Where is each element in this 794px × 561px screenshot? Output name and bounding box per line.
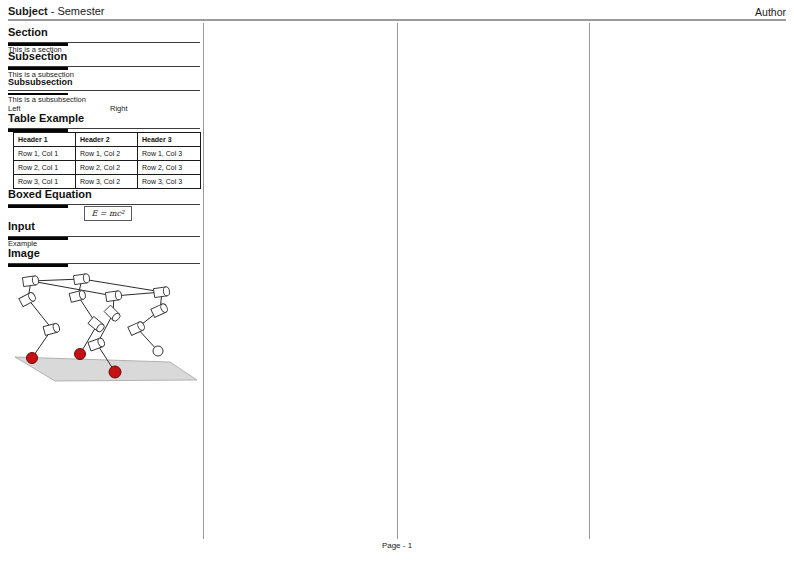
table-cell: Row 3, Col 1 [14,175,76,189]
table-cell: Row 3, Col 2 [76,175,138,189]
joint-cylinder [88,337,106,351]
ground-plane [15,357,197,381]
joint-cylinder [104,305,121,322]
table-header-cell: Header 1 [14,133,76,147]
table-row: Row 1, Col 1 Row 1, Col 2 Row 1, Col 3 [14,147,201,161]
image-heading: Image [8,247,200,264]
joint-cylinder [153,287,170,298]
joint-cylinder [88,316,106,333]
example-table: Header 1 Header 2 Header 3 Row 1, Col 1 … [13,132,201,189]
stance-foot-3 [109,366,121,378]
joint-cylinder [73,274,90,285]
joint-cylinder [19,292,37,307]
equation-exponent: 2 [121,209,125,215]
table-header-cell: Header 3 [138,133,201,147]
page-number: Page - 1 [0,541,794,550]
table-cell: Row 2, Col 3 [138,161,201,175]
table-header-row: Header 1 Header 2 Header 3 [14,133,201,147]
table-cell: Row 1, Col 3 [138,147,201,161]
joint-cylinder [128,321,146,336]
joint-cylinder [105,291,122,302]
robot-upper-leg-link [28,299,52,329]
boxed-equation-heading-bar [8,205,68,208]
input-heading: Input [8,220,200,237]
equation-box: E = mc2 [84,206,132,221]
swing-foot [153,346,163,356]
joint-cylinder [43,323,60,336]
table-cell: Row 2, Col 1 [14,161,76,175]
table-row: Row 3, Col 1 Row 3, Col 2 Row 3, Col 3 [14,175,201,189]
joint-cylinder [151,303,169,318]
column-1: Section This is a section Subsection Thi… [8,0,200,561]
header-author: Author [755,6,786,18]
joint-cylinder [22,276,39,287]
subsubsection-heading: Subsubsection [8,77,200,91]
boxed-equation-heading: Boxed Equation [8,188,200,205]
column-divider-2 [397,23,398,539]
table-header-cell: Header 2 [76,133,138,147]
table-cell: Row 1, Col 2 [76,147,138,161]
section-heading: Section [8,26,200,43]
robot-body-link [82,279,162,292]
robot-figure [8,266,204,390]
subsection-heading: Subsection [8,50,200,67]
subsubsection-body: This is a subsubsection [8,95,86,104]
equation-text: E = mc [91,209,121,218]
stance-foot-2 [75,349,86,360]
stance-foot-1 [27,353,38,364]
table-row: Row 2, Col 1 Row 2, Col 2 Row 2, Col 3 [14,161,201,175]
document-page: Subject - Semester Author Section This i… [0,0,794,561]
table-cell: Row 3, Col 3 [138,175,201,189]
table-example-heading: Table Example [8,112,200,129]
table-cell: Row 1, Col 1 [14,147,76,161]
column-divider-3 [589,23,590,539]
table-cell: Row 2, Col 2 [76,161,138,175]
joint-cylinder [69,290,86,302]
